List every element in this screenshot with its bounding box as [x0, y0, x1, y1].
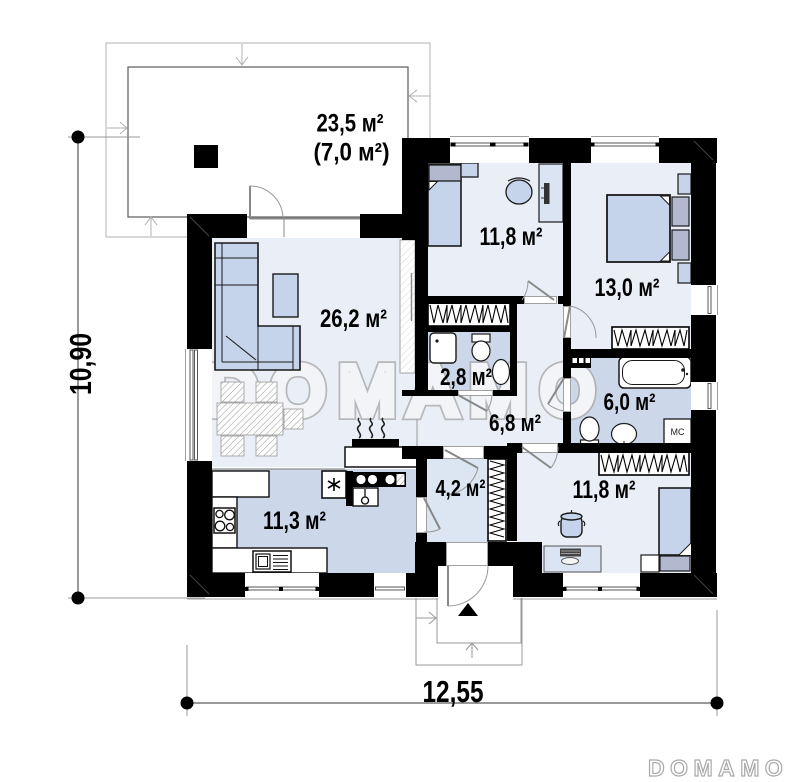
svg-text:12,55: 12,55 — [423, 674, 484, 709]
svg-text:11,8 м²: 11,8 м² — [573, 476, 636, 504]
svg-text:(7,0 м²): (7,0 м²) — [314, 139, 390, 167]
svg-text:11,8 м²: 11,8 м² — [480, 223, 543, 251]
svg-text:26,2 м²: 26,2 м² — [320, 305, 387, 333]
svg-text:2,8 м²: 2,8 м² — [440, 364, 492, 391]
svg-text:DOMAMO: DOMAMO — [648, 755, 788, 781]
svg-text:6,0 м²: 6,0 м² — [604, 389, 656, 416]
svg-text:10,90: 10,90 — [63, 333, 98, 395]
svg-text:23,5 м²: 23,5 м² — [317, 110, 384, 138]
svg-text:6,8 м²: 6,8 м² — [489, 410, 541, 437]
svg-text:11,3 м²: 11,3 м² — [263, 507, 326, 535]
svg-text:13,0 м²: 13,0 м² — [595, 274, 660, 302]
svg-text:МС: МС — [671, 427, 685, 437]
svg-text:4,2 м²: 4,2 м² — [436, 475, 486, 501]
